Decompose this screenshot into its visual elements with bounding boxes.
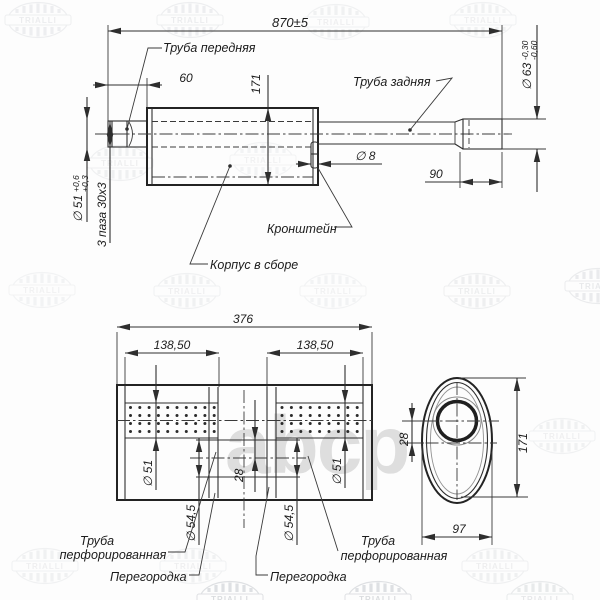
dim-rear-pipe-diameter: ∅ 63 -0,30 -0,60 [502,25,546,192]
label-rear-pipe: Труба задняя [353,75,452,132]
svg-text:Перегородка: Перегородка [110,570,187,584]
dim-d545-left-text: ∅ 54,5 [184,505,198,542]
dim-body-height: 171 [249,74,271,185]
perforation-dots-left [129,406,216,433]
dim-d51-left-text: ∅ 51 [141,460,155,487]
muffler-body [147,108,318,185]
label-bracket: Кронштейн [267,168,352,236]
label-front-pipe: Труба передняя [125,41,256,131]
dim-d8-text: ∅ 8 [355,149,376,163]
bracket-shape [311,142,318,168]
dim-right-chamber: 138,50 [267,338,363,387]
svg-text:перфорированная: перфорированная [60,548,167,562]
dim-90-text: 90 [429,167,443,181]
dim-13850-left-text: 138,50 [154,338,191,352]
dim-870-text: 870±5 [272,15,309,30]
dim-13850-right-text: 138,50 [297,338,334,352]
dim-d63-text: ∅ 63 [520,63,534,90]
svg-text:перфорированная: перфорированная [341,549,448,563]
dim-d51-tol-lower: +0,3 [80,175,90,192]
dim-d545-right-text: ∅ 54,5 [282,505,296,542]
svg-text:Труба: Труба [80,534,114,548]
watermark-layer: abcp [5,3,600,600]
dim-d51-right-text: ∅ 51 [330,458,344,485]
svg-text:Корпус в сборе: Корпус в сборе [210,258,298,272]
dim-perf-pipe-dia-left: ∅ 51 [141,365,159,490]
rear-pipe [318,119,502,149]
dim-overall-length: 870±5 [108,15,502,121]
label-body-assembly: Корпус в сборе [190,164,298,272]
svg-text:Труба передняя: Труба передняя [163,41,256,55]
dim-171-side-text: 171 [249,74,263,94]
dim-60-text: 60 [179,71,193,85]
dim-28-end-text: 28 [397,432,411,447]
dim-171-end-text: 171 [516,433,530,453]
end-view: 28 171 97 [397,378,530,545]
dim-d63-tol-lower: -0,60 [529,40,539,60]
dim-376-text: 376 [233,312,253,326]
dim-28-section-text: 28 [232,468,246,483]
svg-text:Перегородка: Перегородка [270,570,347,584]
slots-note-text: 3 паза 30х3 [95,182,109,247]
dim-97-text: 97 [452,522,467,536]
side-view: 870±5 60 171 [71,15,546,272]
dim-d51-front-text: ∅ 51 [71,195,85,222]
drawing-canvas: TRIALLI abcp 870±5 [0,0,600,600]
muffler-technical-drawing: TRIALLI abcp 870±5 [0,0,600,600]
dim-sleeve-dia-left: ∅ 54,5 [184,438,202,545]
dim-rear-tip-length: 90 [425,152,502,188]
svg-text:Труба: Труба [361,534,395,548]
dim-bracket-hole: ∅ 8 [296,149,382,167]
svg-text:Труба задняя: Труба задняя [353,75,431,89]
svg-text:Кронштейн: Кронштейн [267,222,337,236]
dim-left-chamber: 138,50 [125,338,219,387]
